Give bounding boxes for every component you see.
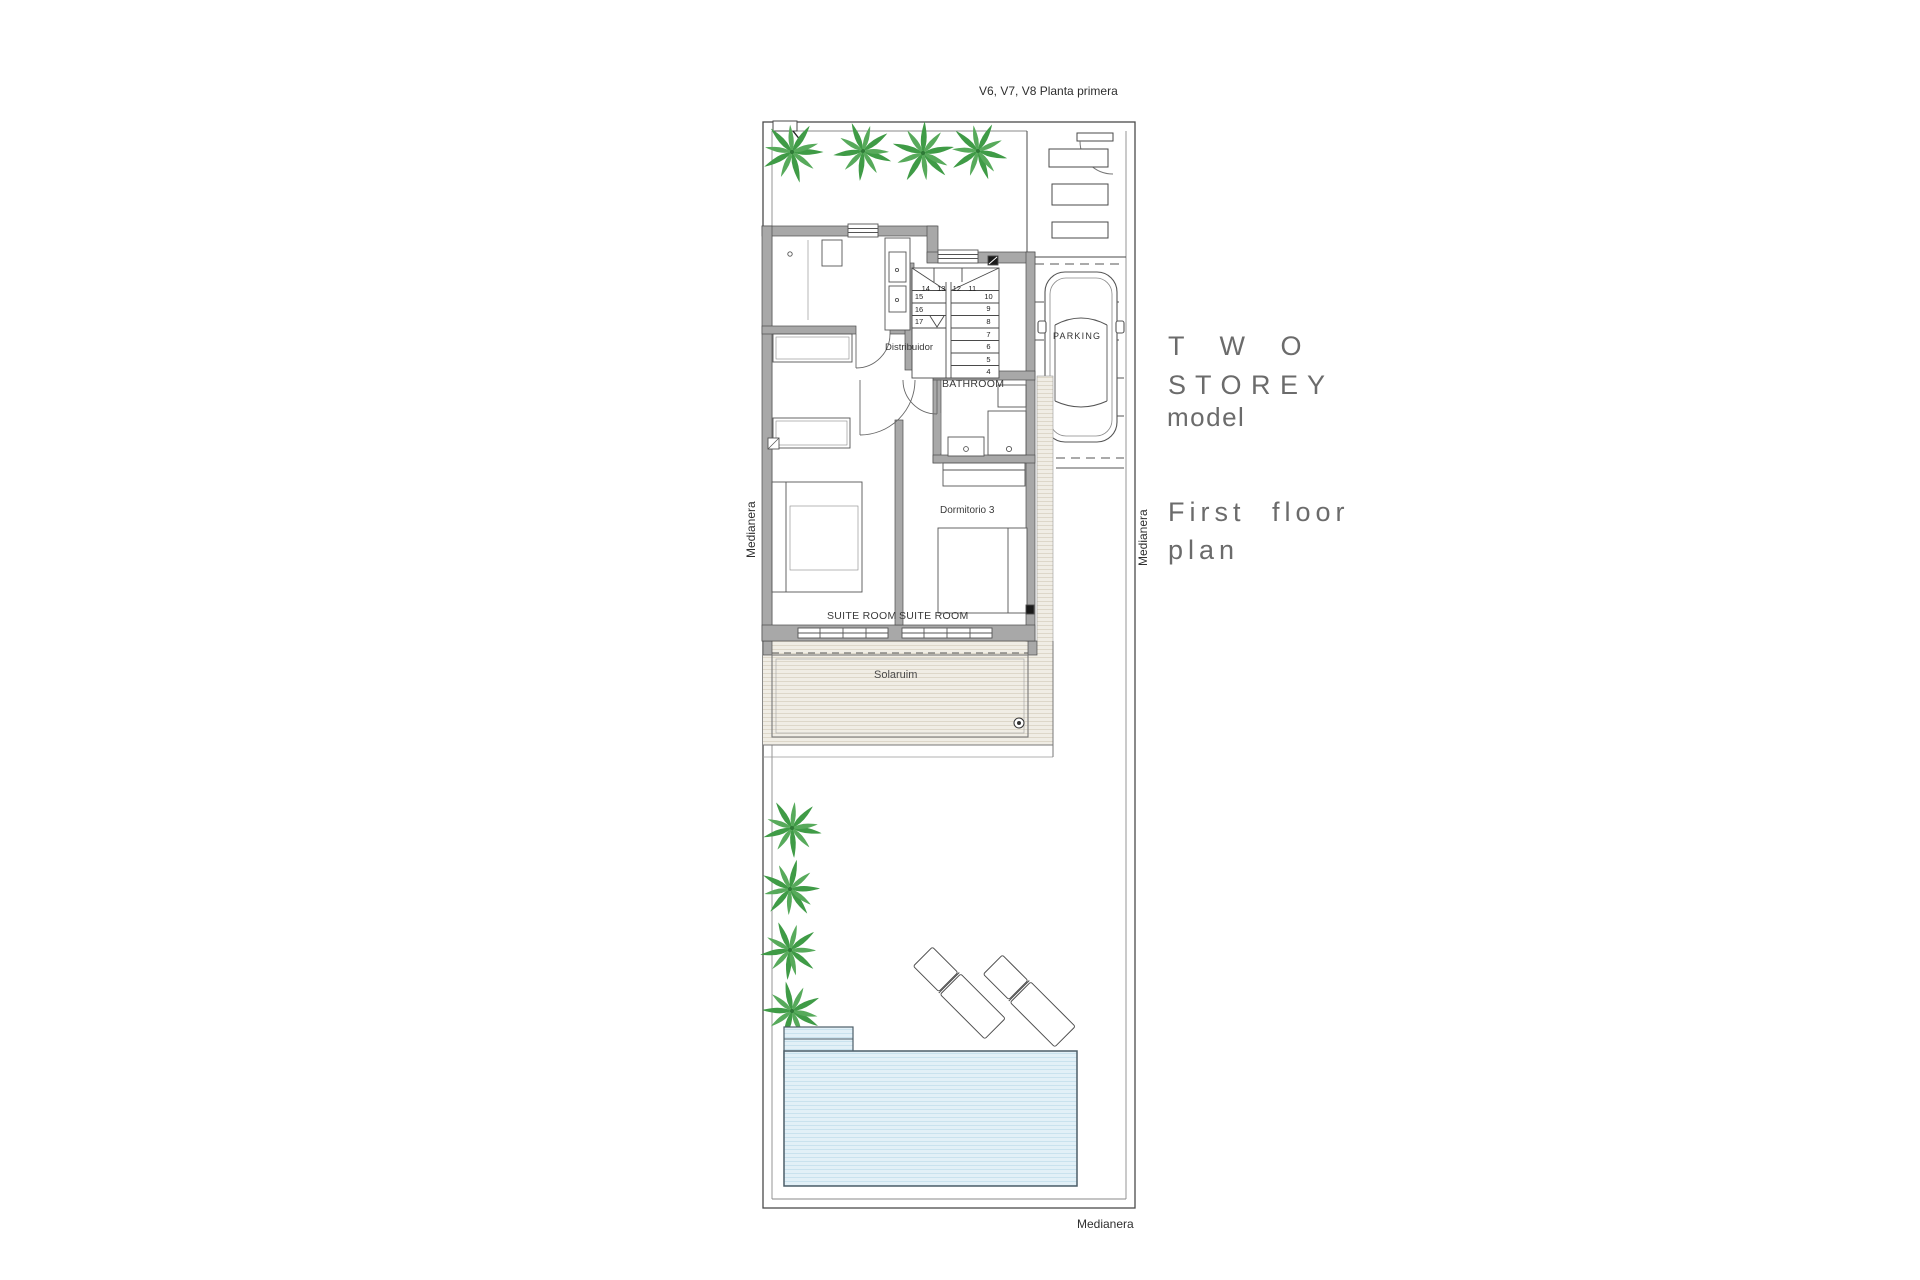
stair-number: 11	[965, 283, 981, 294]
side-text-plan: plan	[1168, 537, 1239, 564]
side-text-model: model	[1167, 404, 1245, 430]
room-label-parking: PARKING	[1053, 332, 1101, 341]
entry-area	[1027, 131, 1126, 257]
stair-number: 4	[980, 365, 997, 378]
room-label-distribuidor: Distribuidor	[885, 343, 933, 353]
window	[938, 250, 978, 263]
garden-palms	[750, 797, 832, 1052]
bed	[938, 528, 1027, 613]
stair-numbers-right-col: 10987654	[980, 290, 997, 378]
boundary-label-bottom: Medianera	[1077, 1218, 1134, 1230]
bed	[772, 482, 862, 592]
boundary-label-right: Medianera	[1137, 509, 1149, 566]
side-text-first-floor: First floor	[1168, 499, 1350, 526]
floor-plan-drawing	[0, 0, 1920, 1280]
drawing-title: V6, V7, V8 Planta primera	[979, 85, 1118, 97]
entry-step	[1052, 184, 1108, 205]
sun-loungers	[913, 946, 1076, 1047]
top-garden-palms	[763, 113, 1013, 198]
room-label-suite-right: SUITE ROOM	[899, 611, 969, 622]
stair-number: 10	[980, 290, 997, 303]
pool	[784, 1027, 1077, 1186]
stair-number: 7	[980, 328, 997, 341]
side-text-storey: S T O R E Y	[1168, 372, 1326, 399]
side-text-two: T W O	[1168, 333, 1316, 360]
stair-numbers-left-col: 151617	[911, 290, 927, 328]
gate-marker	[773, 121, 797, 131]
stair-number: 6	[980, 340, 997, 353]
closet	[822, 240, 842, 266]
wardrobe	[773, 418, 850, 448]
entry-door-leaf	[1077, 133, 1113, 141]
window	[798, 628, 888, 638]
corner-marker	[988, 256, 998, 265]
stair-numbers-top-row: 14131211	[918, 283, 980, 294]
stair-number: 17	[911, 315, 927, 328]
window	[848, 224, 878, 237]
stair-number: 8	[980, 315, 997, 328]
stair-number: 9	[980, 303, 997, 316]
pool-basin	[784, 1051, 1077, 1186]
stair-number: 13	[934, 283, 950, 294]
floor-plan-page: V6, V7, V8 Planta primera T W O S T O R …	[0, 0, 1920, 1280]
stair-number: 12	[949, 283, 965, 294]
window	[902, 628, 992, 638]
boundary-label-left: Medianera	[745, 501, 757, 558]
entry-step	[1052, 222, 1108, 238]
stair-number: 16	[911, 303, 927, 316]
stair-number: 5	[980, 353, 997, 366]
corner-marker	[1026, 605, 1034, 614]
shelf	[943, 463, 1025, 486]
stair-number: 15	[911, 290, 927, 303]
vanity-unit	[885, 238, 910, 330]
room-label-solarium: Solaruim	[874, 670, 917, 681]
room-label-dormitorio3: Dormitorio 3	[940, 506, 994, 516]
bathroom-fixtures	[941, 385, 1026, 456]
room-label-suite-left: SUITE ROOM	[827, 611, 897, 622]
entry-step	[1049, 149, 1108, 167]
drain-icon	[1014, 718, 1024, 728]
room-label-bathroom: BATHROOM	[942, 379, 1004, 390]
wardrobe	[773, 334, 852, 362]
